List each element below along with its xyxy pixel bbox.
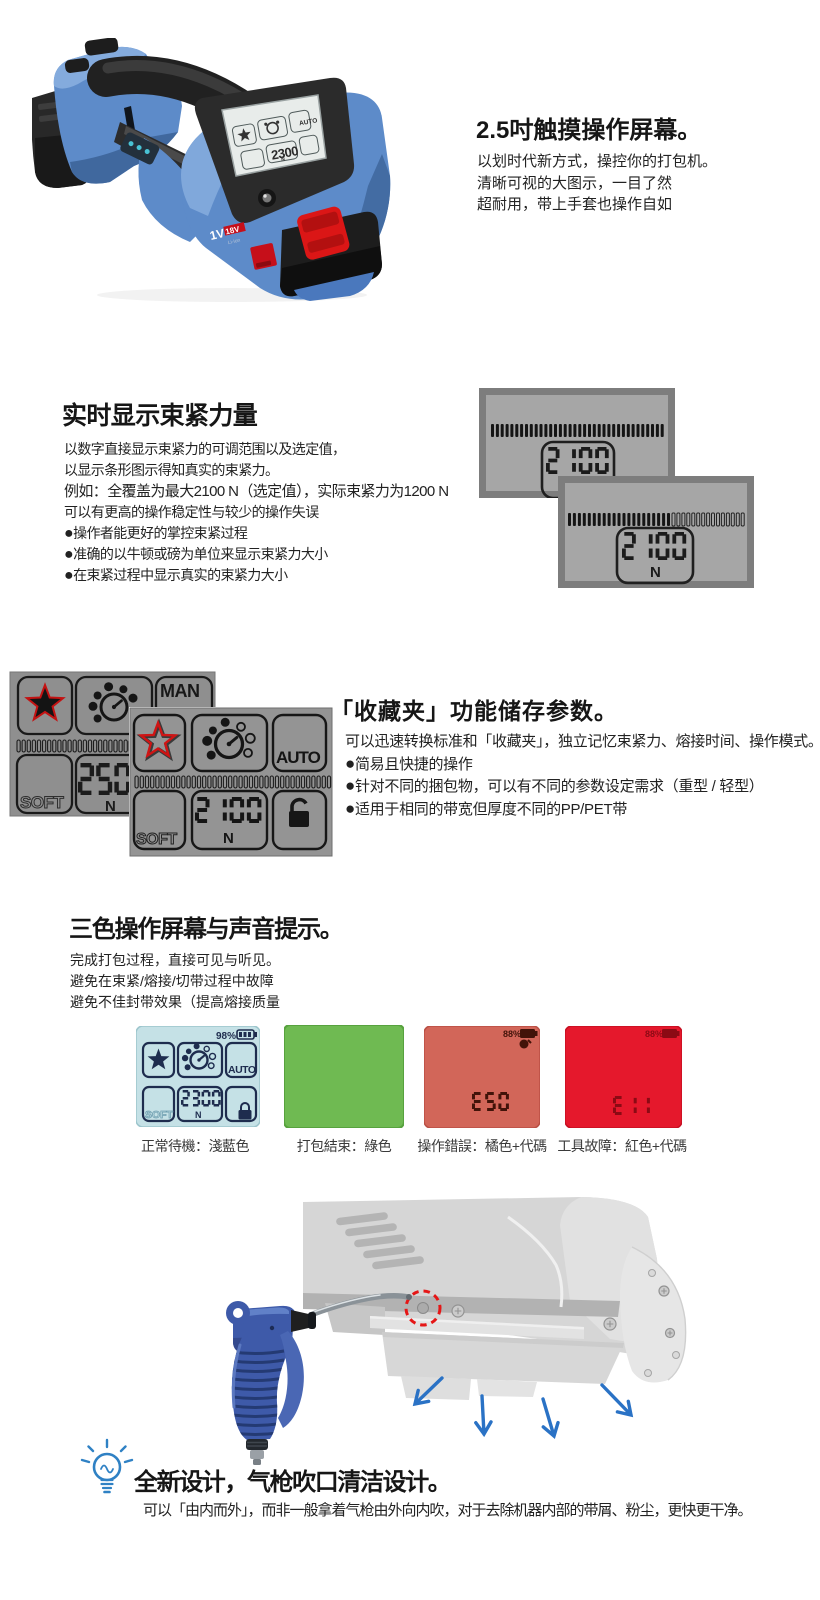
svg-text:SOFT: SOFT	[136, 831, 177, 848]
svg-text:N: N	[650, 564, 661, 581]
svg-text:N: N	[223, 830, 234, 847]
svg-text:AUTO: AUTO	[276, 748, 321, 767]
svg-text:AUTO: AUTO	[228, 1064, 256, 1076]
svg-text:N: N	[195, 1110, 202, 1120]
svg-text:88%: 88%	[503, 1029, 521, 1039]
svg-text:SOFT: SOFT	[20, 793, 64, 812]
svg-text:N: N	[105, 798, 116, 815]
svg-text:SOFT: SOFT	[145, 1109, 174, 1121]
svg-text:MAN: MAN	[160, 681, 200, 701]
svg-text:88%: 88%	[645, 1029, 663, 1039]
svg-text:98%: 98%	[216, 1031, 236, 1042]
